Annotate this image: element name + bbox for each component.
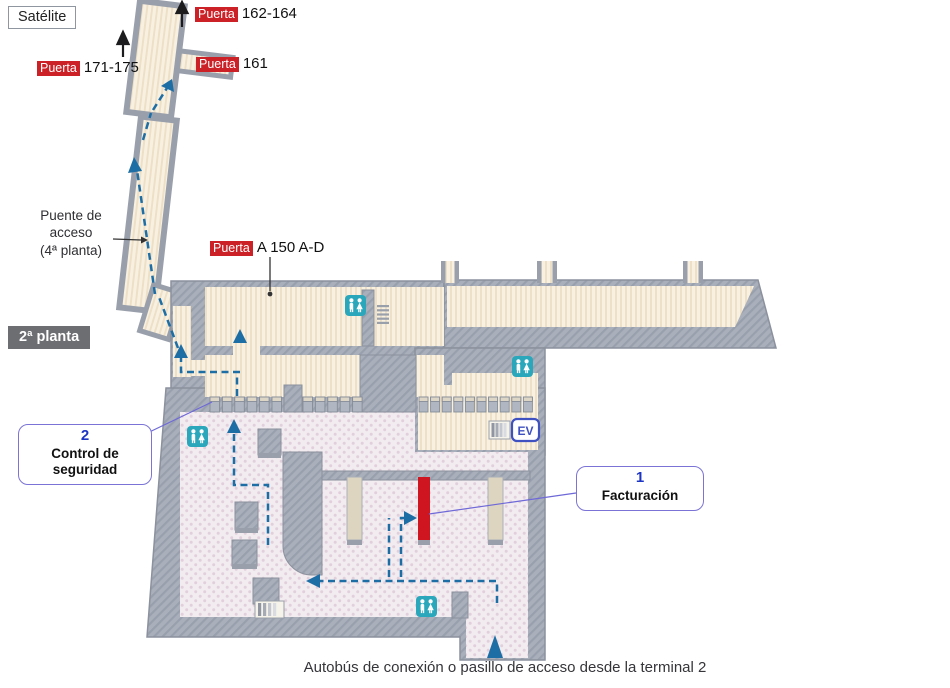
bridge-label-line1: Puente de (25, 207, 117, 224)
access-bridge-corridor (119, 117, 177, 312)
callout-number: 1 (581, 469, 699, 488)
security-gate-group-mid (303, 397, 362, 412)
gate-callout-a150: PuertaA 150 A-D (210, 239, 324, 256)
map-caption: Autobús de conexión o pasillo de acceso … (180, 659, 830, 676)
callout-number: 2 (23, 427, 147, 446)
bridge-label-line2: acceso (25, 224, 117, 241)
escalator-icon (255, 601, 284, 618)
gate-range-text: A 150 A-D (257, 239, 325, 256)
elevator-icon: EV (512, 419, 539, 441)
gate-range-text: 162-164 (242, 5, 297, 22)
security-control-callout: 2 Control de seguridad (18, 424, 152, 485)
satellite-region-label: Satélite (8, 6, 76, 29)
restroom-icon (345, 295, 366, 316)
access-bridge-label: Puente de acceso (4ª planta) (25, 207, 117, 259)
escalator-icon (489, 421, 510, 439)
gate-callout-162-164: Puerta162-164 (195, 5, 297, 22)
puerta-badge: Puerta (37, 61, 80, 76)
gate-callout-161: Puerta161 (196, 55, 268, 72)
highlighted-checkin-desk (418, 477, 430, 545)
terminal-map-graphic: EV (0, 0, 950, 688)
gate-range-text: 171-175 (84, 59, 139, 76)
callout-label: Facturación (581, 488, 699, 504)
elevator-label: EV (517, 424, 533, 438)
terminal-floorplan: EV (0, 0, 950, 688)
bridge-label-line3: (4ª planta) (25, 242, 117, 259)
floor-badge: 2ª planta (8, 326, 90, 349)
puerta-badge: Puerta (195, 7, 238, 22)
puerta-badge: Puerta (210, 241, 253, 256)
callout-label: Control de seguridad (23, 446, 147, 478)
gate-range-text: 161 (243, 55, 268, 72)
restroom-icon (512, 356, 533, 377)
puerta-badge: Puerta (196, 57, 239, 72)
restroom-icon (416, 596, 437, 617)
restroom-icon (187, 426, 208, 447)
check-in-callout: 1 Facturación (576, 466, 704, 511)
gate-callout-171-175: Puerta171-175 (37, 59, 139, 76)
